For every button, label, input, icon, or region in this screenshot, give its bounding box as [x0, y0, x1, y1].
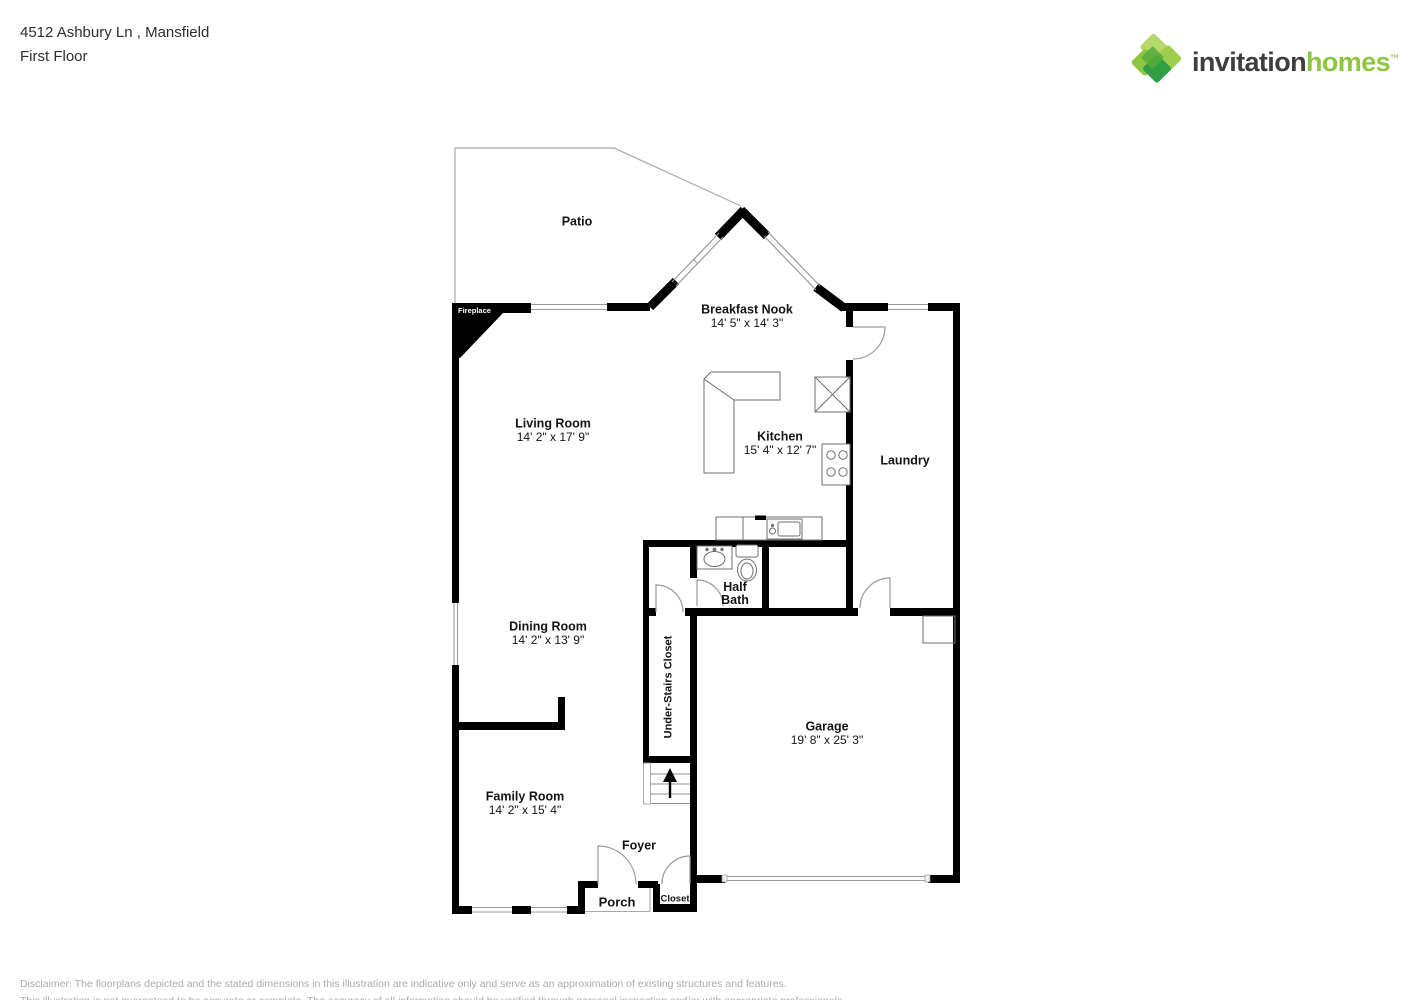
room-label-kitchen: Kitchen — [757, 431, 803, 444]
room-label-foyer: Foyer — [622, 840, 656, 853]
room-dims-breakfast-nook: 14' 5" x 14' 3" — [711, 316, 783, 330]
room-label-closet: Closet — [660, 893, 689, 906]
room-label-patio: Patio — [562, 216, 593, 229]
floorplan-drawing — [0, 0, 1414, 1000]
entry-closet-door-arc — [662, 856, 690, 884]
kitchen-sink-counter — [716, 516, 822, 541]
room-label-under-stairs-closet: Under-Stairs Closet — [663, 636, 676, 739]
disclaimer-line-2: This illustration is not guaranteed to b… — [20, 995, 845, 1000]
room-label-living-room: Living Room — [515, 418, 591, 431]
floorplan-page: 4512 Ashbury Ln , Mansfield First Floor … — [0, 0, 1414, 1000]
room-label-porch: Porch — [599, 896, 636, 909]
garage-door — [722, 875, 930, 882]
room-label-garage: Garage — [805, 721, 848, 734]
room-label-laundry: Laundry — [880, 455, 929, 468]
fireplace-label: Fireplace — [458, 306, 491, 315]
stairs — [644, 763, 691, 804]
room-dims-garage: 19' 8" x 25' 3" — [791, 733, 863, 747]
room-dims-living-room: 14' 2" x 17' 9" — [517, 430, 589, 444]
laundry-entry-door-arc — [853, 327, 885, 359]
room-label-breakfast-nook: Breakfast Nook — [701, 304, 793, 317]
room-label-dining-room: Dining Room — [509, 621, 587, 634]
refrigerator-icon — [815, 377, 850, 412]
stove-icon — [822, 444, 850, 485]
toilet-icon — [736, 545, 758, 581]
room-dims-family-room: 14' 2" x 15' 4" — [489, 803, 561, 817]
water-heater-pad — [923, 616, 955, 643]
room-dims-kitchen: 15' 4" x 12' 7" — [744, 443, 816, 457]
room-dims-dining-room: 14' 2" x 13' 9" — [512, 633, 584, 647]
patio-outline — [455, 148, 741, 303]
vanity-sink-icon — [697, 546, 732, 569]
disclaimer-line-1: Disclaimer: The floorplans depicted and … — [20, 978, 787, 990]
under-stairs-closet-door-arc — [656, 585, 683, 612]
bay-windows — [672, 232, 820, 290]
half-bath-fixtures — [697, 545, 758, 581]
room-label-half-bath: Half Bath — [712, 581, 758, 607]
laundry-garage-door-arc — [860, 578, 890, 608]
bay-walls — [650, 210, 844, 308]
room-label-family-room: Family Room — [486, 791, 565, 804]
